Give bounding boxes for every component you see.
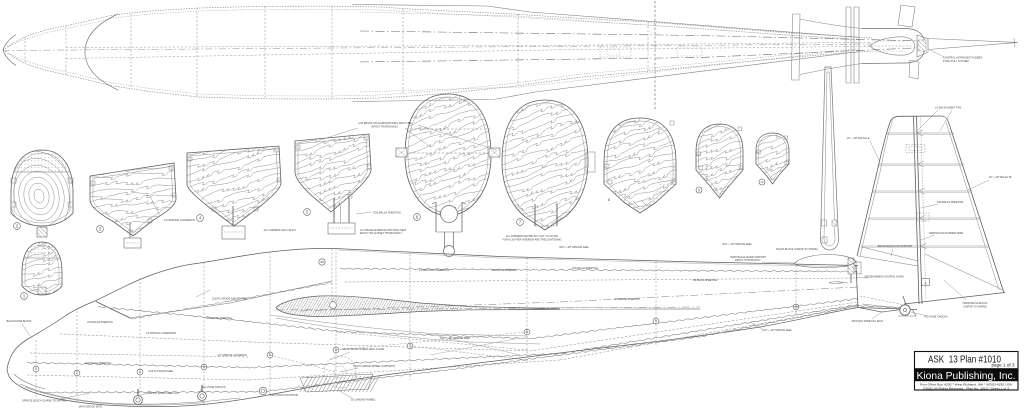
svg-text:A/C HOSE SHOCKS: A/C HOSE SHOCKS [202,386,226,389]
svg-text:3/32 BALSA SHEETING: 3/32 BALSA SHEETING [614,298,640,301]
svg-text:1/8 PIANO WIRE TAIL SKID: 1/8 PIANO WIRE TAIL SKID [851,320,883,323]
svg-text:3/16" + 1/8" SPRUCE KEEL: 3/16" + 1/8" SPRUCE KEEL [559,246,589,249]
svg-text:3/16" + 1/8" SPRUCE KEEL: 3/16" + 1/8" SPRUCE KEEL [722,243,752,246]
svg-text:EPOXY OR GUSSET THOROUGHLY: EPOXY OR GUSSET THOROUGHLY [360,232,402,235]
svg-text:1/4 SPRUCE LONGERON: 1/4 SPRUCE LONGERON [164,218,195,222]
svg-text:3: 3 [139,370,141,374]
svg-text:(CARVE TO SHAPE): (CARVE TO SHAPE) [963,305,987,308]
svg-text:3/32 PLYWOOD KEEL CAP: 3/32 PLYWOOD KEEL CAP [148,392,179,395]
svg-text:ALL FORMERS 3/32 LITE PLY: ALL FORMERS 3/32 LITE PLY [264,229,297,232]
svg-text:1/2" + 1/8" BALSA TE: 1/2" + 1/8" BALSA TE [989,176,1012,179]
svg-text:PUSH PULL SYSTEM: PUSH PULL SYSTEM [943,59,969,63]
svg-text:3/8 BALSA SHEETING: 3/8 BALSA SHEETING [693,279,718,282]
svg-text:EPOXY THOROUGHLY: EPOXY THOROUGHLY [372,126,399,129]
svg-text:9: 9 [698,188,700,192]
svg-text:1/8 PLYWOOD SKID: 1/8 PLYWOOD SKID [78,406,101,409]
svg-text:3/32 BALSA SHEETING: 3/32 BALSA SHEETING [491,269,517,272]
svg-text:1/16 BALSA SHEETING: 1/16 BALSA SHEETING [937,201,964,204]
svg-text:©2002 All Rights Reserved Pl: ©2002 All Rights Reserved Plan No. 1010 … [923,386,1009,390]
svg-text:page 1 of 3: page 1 of 3 [992,363,1015,368]
svg-text:1/2" + 1/8" BALSA LE: 1/2" + 1/8" BALSA LE [847,137,870,140]
svg-text:Kiona Publishing, Inc.: Kiona Publishing, Inc. [917,371,1016,382]
svg-text:A/C HOSE SHOCKS: A/C HOSE SHOCKS [924,316,948,319]
svg-text:6B: 6B [320,260,324,264]
svg-text:6/16" + 3/8" SPRUCE KEEL: 6/16" + 3/8" SPRUCE KEEL [440,337,470,340]
svg-text:BALSA BLOCK (CARVE TO SHAPE): BALSA BLOCK (CARVE TO SHAPE) [776,248,817,251]
svg-text:2: 2 [76,371,78,375]
svg-text:4/16 PLYWOOD KEEL: 4/16 PLYWOOD KEEL [148,370,174,373]
svg-text:1/2 BALSA SHEET TIPS: 1/2 BALSA SHEET TIPS [935,107,961,110]
svg-text:10: 10 [760,180,764,184]
svg-text:1/4 SPRUCE LONGERONS: 1/4 SPRUCE LONGERONS [419,269,449,272]
svg-text:4/32 PLYWOOD WHEEL SUPPORTS: 4/32 PLYWOOD WHEEL SUPPORTS [353,365,395,368]
svg-text:3/32 BALSA SHEETING: 3/32 BALSA SHEETING [206,317,232,320]
svg-text:1: 1 [35,367,37,371]
svg-text:ASK 13 Plan #1010: ASK 13 Plan #1010 [928,354,1001,365]
svg-text:1/4 SPRUCE LONGERONS: 1/4 SPRUCE LONGERONS [146,332,176,335]
svg-text:3/8 PLYWOOD WHEEL WELL PLATE: 3/8 PLYWOOD WHEEL WELL PLATE [342,348,384,351]
svg-text:SPRUCE BLOCK (CARVE TO SHAPE): SPRUCE BLOCK (CARVE TO SHAPE) [22,400,66,403]
svg-text:GEESHUMMER CONTROL HORN: GEESHUMMER CONTROL HORN [864,276,903,279]
svg-text:1/4" SPRUCE LONGERON: 1/4" SPRUCE LONGERON [217,354,246,357]
svg-text:HARD BALSA RUDDER SPAR: HARD BALSA RUDDER SPAR [929,232,964,235]
svg-text:10: 10 [794,305,798,309]
svg-text:2/32 BALSA SHEETING: 2/32 BALSA SHEETING [85,362,111,365]
svg-text:BALSA BLOCK FIN SUPPORT: BALSA BLOCK FIN SUPPORT [878,245,913,248]
svg-text:1/16" + 1/8" SPRUCE KEEL: 1/16" + 1/8" SPRUCE KEEL [762,329,792,332]
svg-text:6: 6 [335,348,337,352]
svg-text:2/32 BALSA SHEETING: 2/32 BALSA SHEETING [373,211,401,215]
svg-text:2/32 BALSA SHEETING: 2/32 BALSA SHEETING [87,321,113,324]
svg-text:BALSA NOSE BLOCK: BALSA NOSE BLOCK [7,320,32,323]
svg-text:3/32 PLYWOOD CANOPY RAIL: 3/32 PLYWOOD CANOPY RAIL [212,298,248,301]
svg-text:EPOXY THOROUGHLY: EPOXY THOROUGHLY [735,259,761,262]
svg-text:2/32 BALSA SHEETING: 2/32 BALSA SHEETING [572,267,598,270]
svg-text:TWO HOOK POSITIONS: TWO HOOK POSITIONS [270,394,299,397]
svg-text:FOR A LIGHTER INTERIOR AND THE: FOR A LIGHTER INTERIOR AND THE LIGHTENIN… [503,238,562,241]
svg-text:9: 9 [655,319,657,323]
svg-text:1/2 LANDING WHEEL: 1/2 LANDING WHEEL [351,399,376,402]
